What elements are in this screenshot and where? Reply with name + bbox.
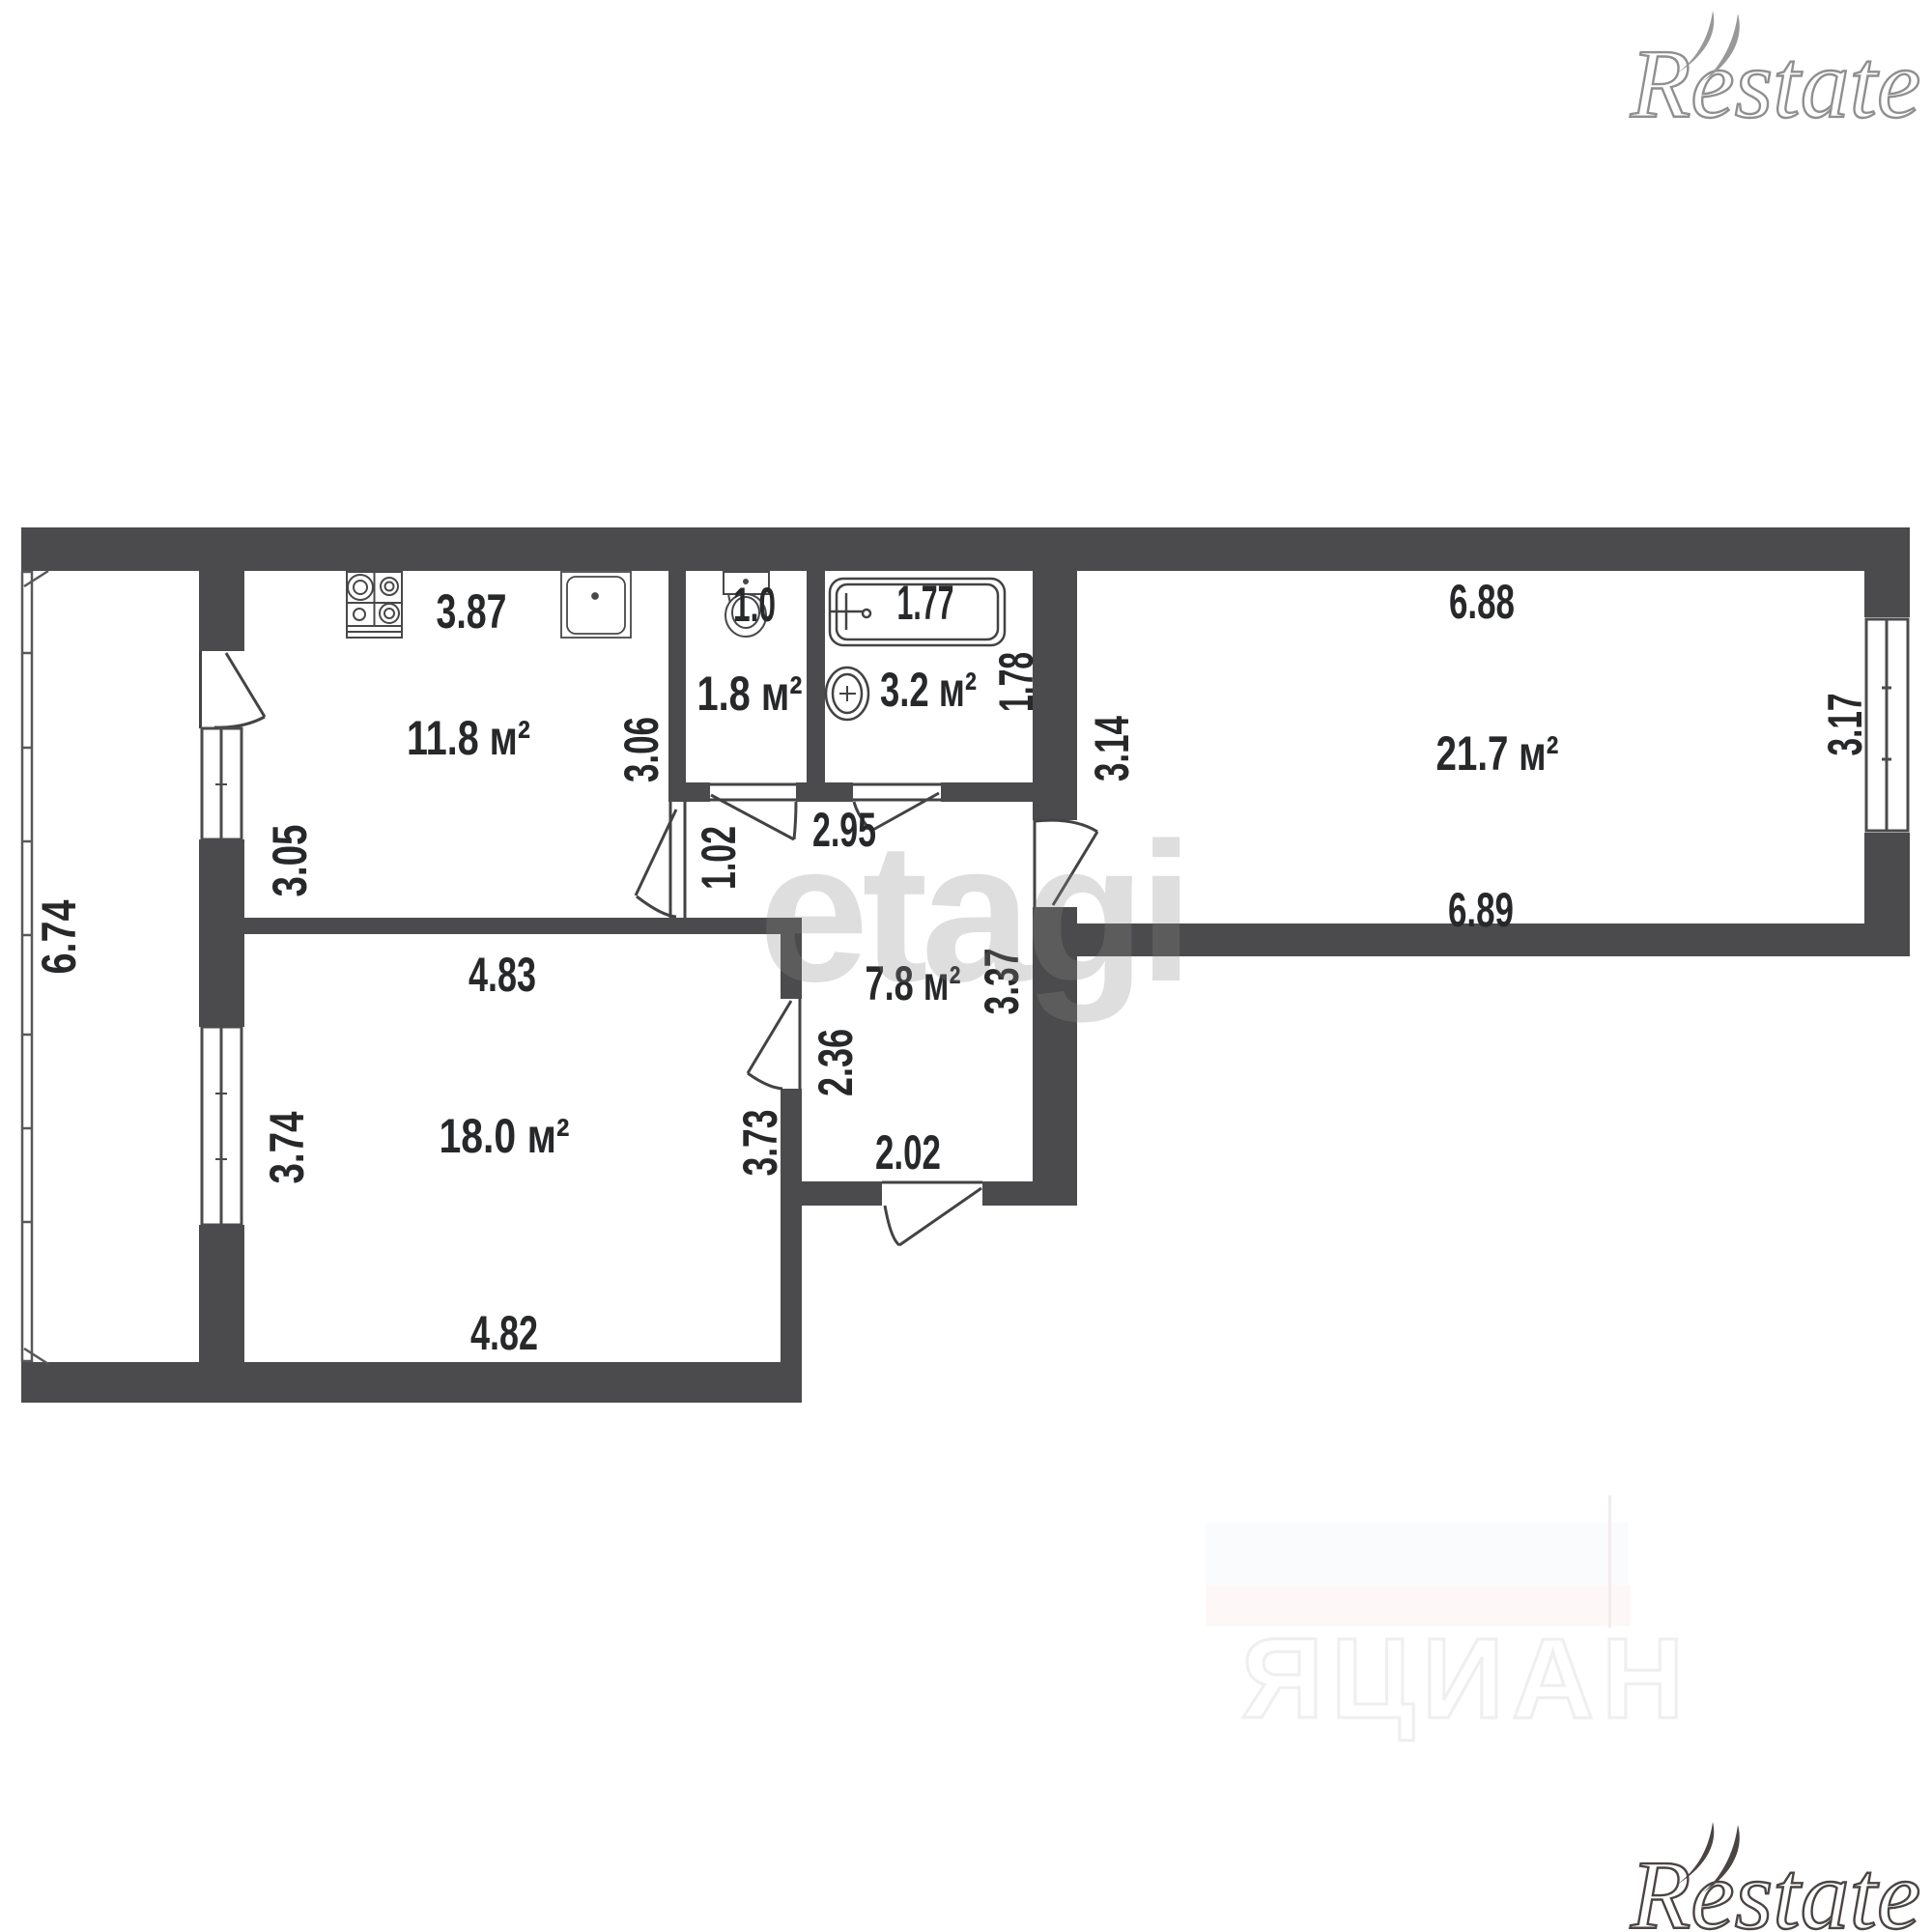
svg-text:1.02: 1.02 — [692, 826, 746, 890]
svg-text:1.8 м²: 1.8 м² — [697, 667, 803, 721]
svg-text:6.89: 6.89 — [1448, 883, 1514, 937]
svg-text:etagi: etagi — [758, 802, 1186, 1023]
svg-text:3.05: 3.05 — [263, 825, 317, 897]
svg-text:4.82: 4.82 — [470, 1306, 538, 1360]
svg-text:18.0 м²: 18.0 м² — [440, 1109, 570, 1163]
svg-text:Restate: Restate — [1630, 1841, 1920, 1932]
svg-text:4.83: 4.83 — [469, 948, 536, 1002]
svg-text:1.0: 1.0 — [733, 578, 776, 632]
svg-text:3.2 м²: 3.2 м² — [880, 663, 977, 717]
svg-text:3.74: 3.74 — [260, 1111, 314, 1183]
svg-text:ЯЦИАН: ЯЦИАН — [1241, 1615, 1691, 1743]
svg-text:2.36: 2.36 — [809, 1029, 863, 1096]
svg-text:11.8 м²: 11.8 м² — [407, 711, 530, 765]
svg-text:3.17: 3.17 — [1818, 694, 1872, 756]
svg-text:3.87: 3.87 — [437, 584, 507, 639]
svg-text:Restate: Restate — [1630, 30, 1920, 139]
svg-text:6.88: 6.88 — [1449, 575, 1515, 629]
svg-text:3.14: 3.14 — [1085, 716, 1139, 781]
svg-text:3.73: 3.73 — [733, 1110, 787, 1177]
svg-text:2.02: 2.02 — [875, 1125, 941, 1179]
svg-text:1.78: 1.78 — [989, 652, 1043, 712]
svg-text:6.74: 6.74 — [32, 899, 86, 974]
svg-text:21.7 м²: 21.7 м² — [1436, 726, 1559, 781]
svg-text:3.06: 3.06 — [614, 717, 668, 782]
svg-text:1.77: 1.77 — [897, 576, 954, 630]
